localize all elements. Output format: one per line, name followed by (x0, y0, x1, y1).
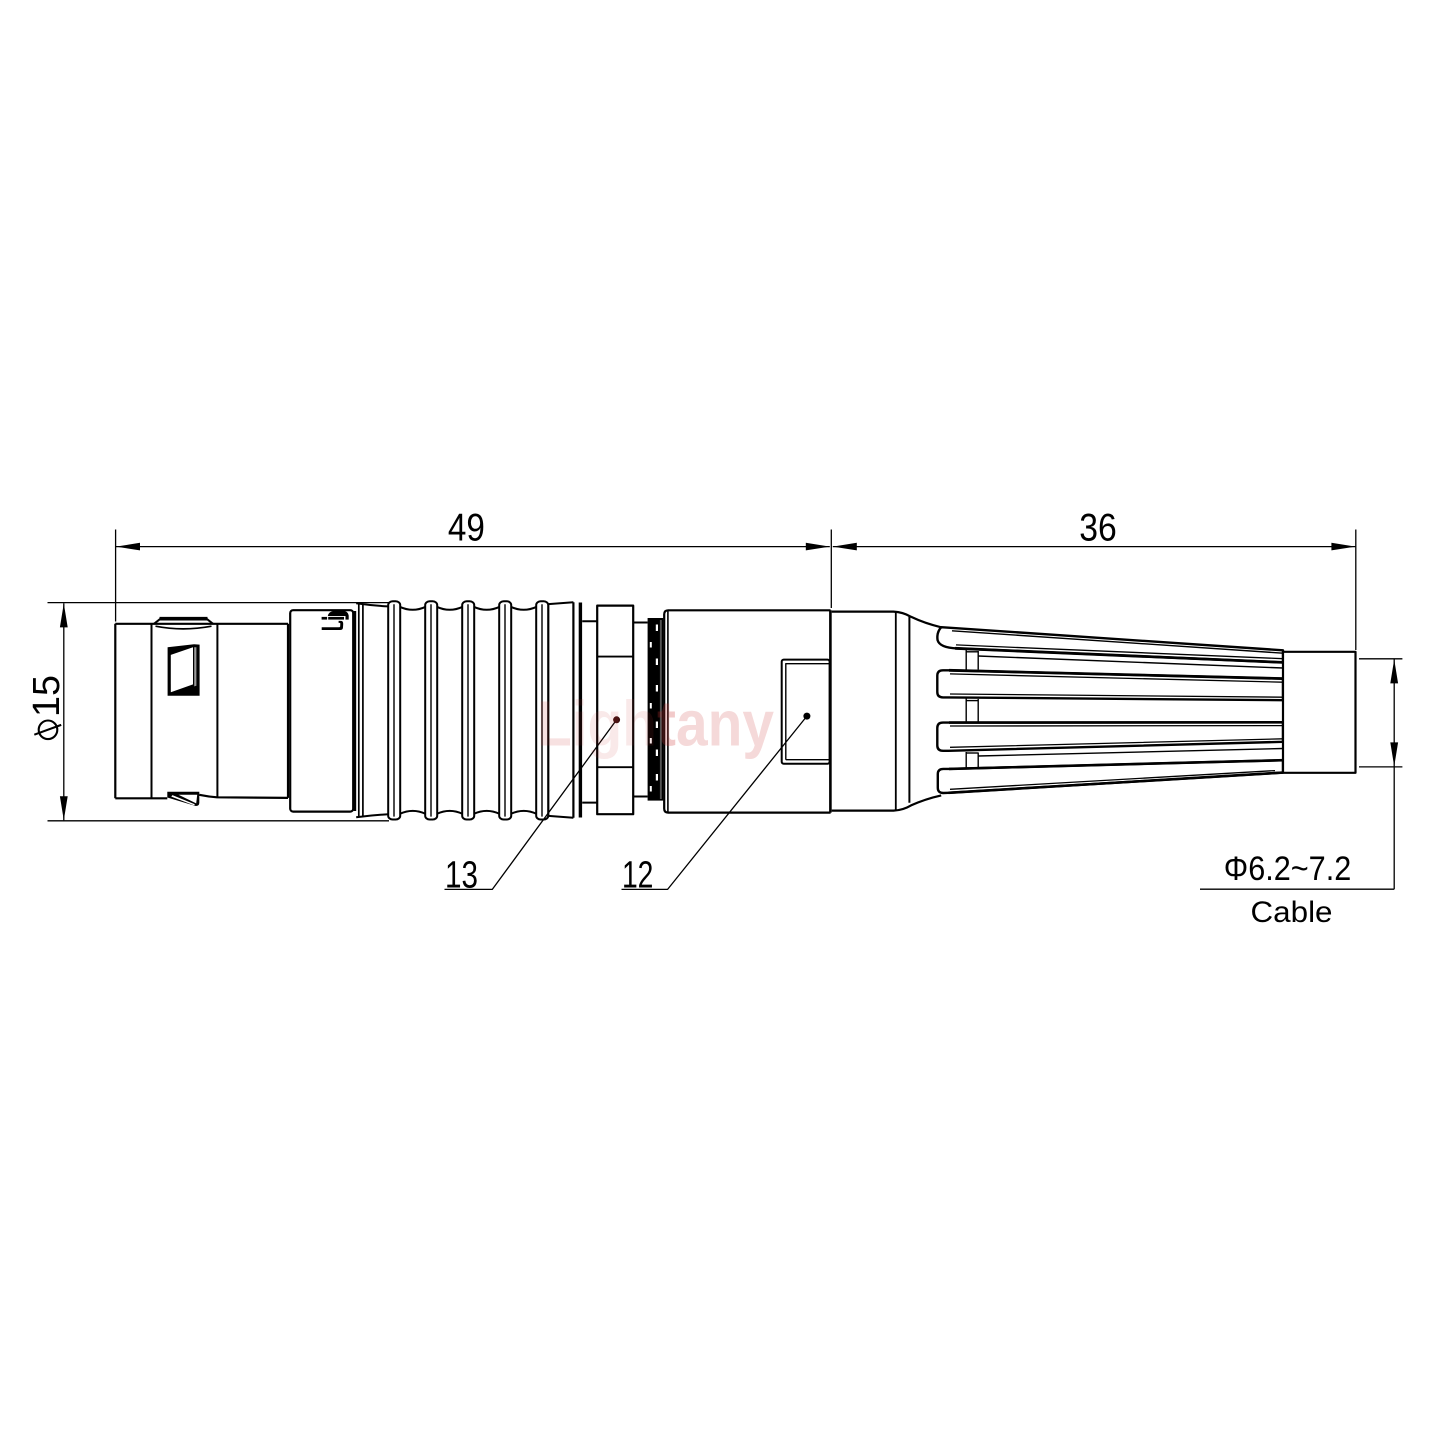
svg-text:15: 15 (26, 675, 68, 717)
svg-text:12: 12 (622, 855, 654, 897)
svg-text:36: 36 (1079, 507, 1117, 550)
svg-text:Φ6.2~7.2: Φ6.2~7.2 (1224, 850, 1352, 888)
svg-text:13: 13 (445, 855, 478, 897)
svg-text:Cable: Cable (1251, 896, 1333, 929)
svg-text:Lightany: Lightany (537, 688, 774, 760)
svg-text:49: 49 (448, 507, 485, 550)
